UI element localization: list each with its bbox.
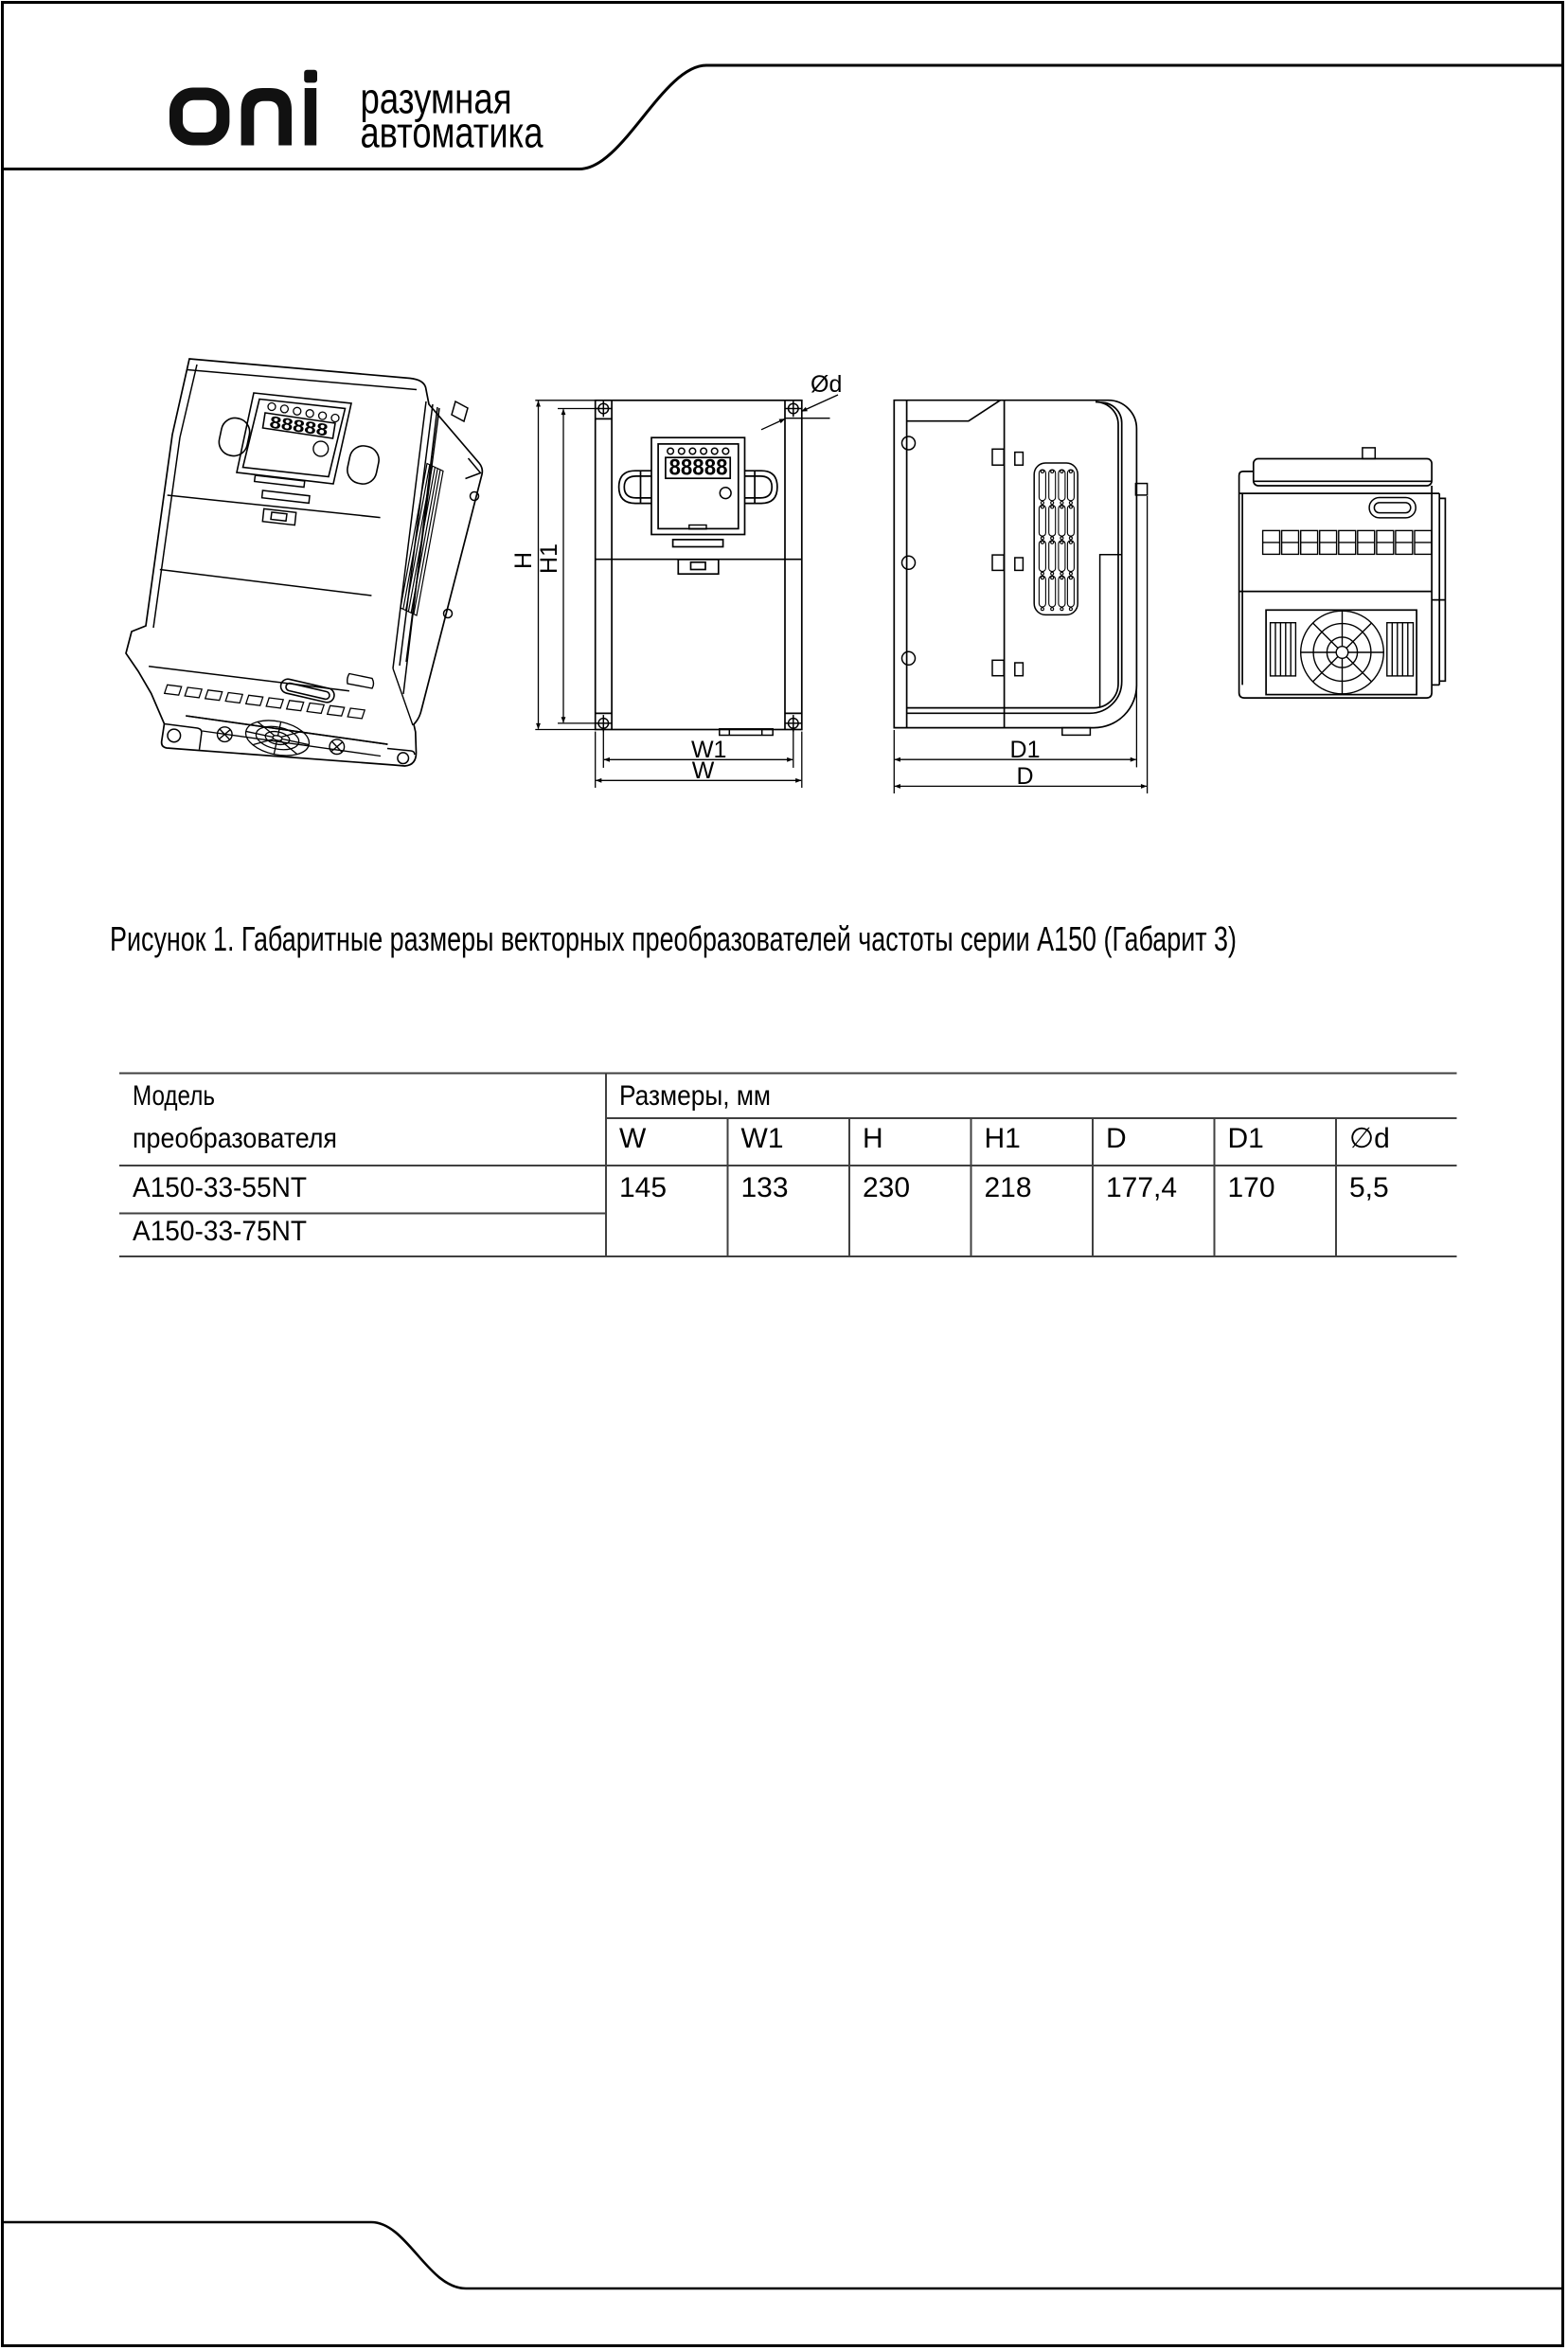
svg-text:D1: D1 xyxy=(1228,1123,1264,1154)
svg-text:∅d: ∅d xyxy=(1349,1123,1390,1154)
svg-text:D1: D1 xyxy=(1010,737,1041,763)
svg-text:Ød: Ød xyxy=(811,371,842,398)
svg-text:W: W xyxy=(619,1123,647,1154)
svg-text:W: W xyxy=(692,757,715,784)
svg-text:H: H xyxy=(510,552,537,569)
svg-text:133: 133 xyxy=(741,1172,789,1203)
svg-text:D: D xyxy=(1106,1123,1127,1154)
svg-text:А150-33-75NT: А150-33-75NT xyxy=(133,1216,307,1247)
svg-text:W1: W1 xyxy=(741,1123,784,1154)
svg-text:88888: 88888 xyxy=(669,455,728,481)
svg-text:H1: H1 xyxy=(536,543,562,574)
svg-text:5,5: 5,5 xyxy=(1349,1172,1389,1203)
svg-text:Рисунок 1. Габаритные размеры: Рисунок 1. Габаритные размеры векторных … xyxy=(110,919,1237,958)
svg-text:Модель: Модель xyxy=(133,1080,215,1112)
svg-text:145: 145 xyxy=(619,1172,667,1203)
svg-text:H1: H1 xyxy=(985,1123,1021,1154)
svg-text:230: 230 xyxy=(863,1172,910,1203)
svg-text:А150-33-55NT: А150-33-55NT xyxy=(133,1172,307,1203)
svg-text:автоматика: автоматика xyxy=(361,109,544,157)
svg-text:170: 170 xyxy=(1228,1172,1275,1203)
svg-text:177,4: 177,4 xyxy=(1106,1172,1177,1203)
svg-text:H: H xyxy=(863,1123,883,1154)
svg-text:преобразователя: преобразователя xyxy=(133,1123,337,1154)
svg-text:218: 218 xyxy=(985,1172,1032,1203)
svg-text:88888: 88888 xyxy=(268,413,329,440)
svg-text:D: D xyxy=(1016,763,1033,790)
svg-text:Размеры, мм: Размеры, мм xyxy=(619,1080,771,1112)
